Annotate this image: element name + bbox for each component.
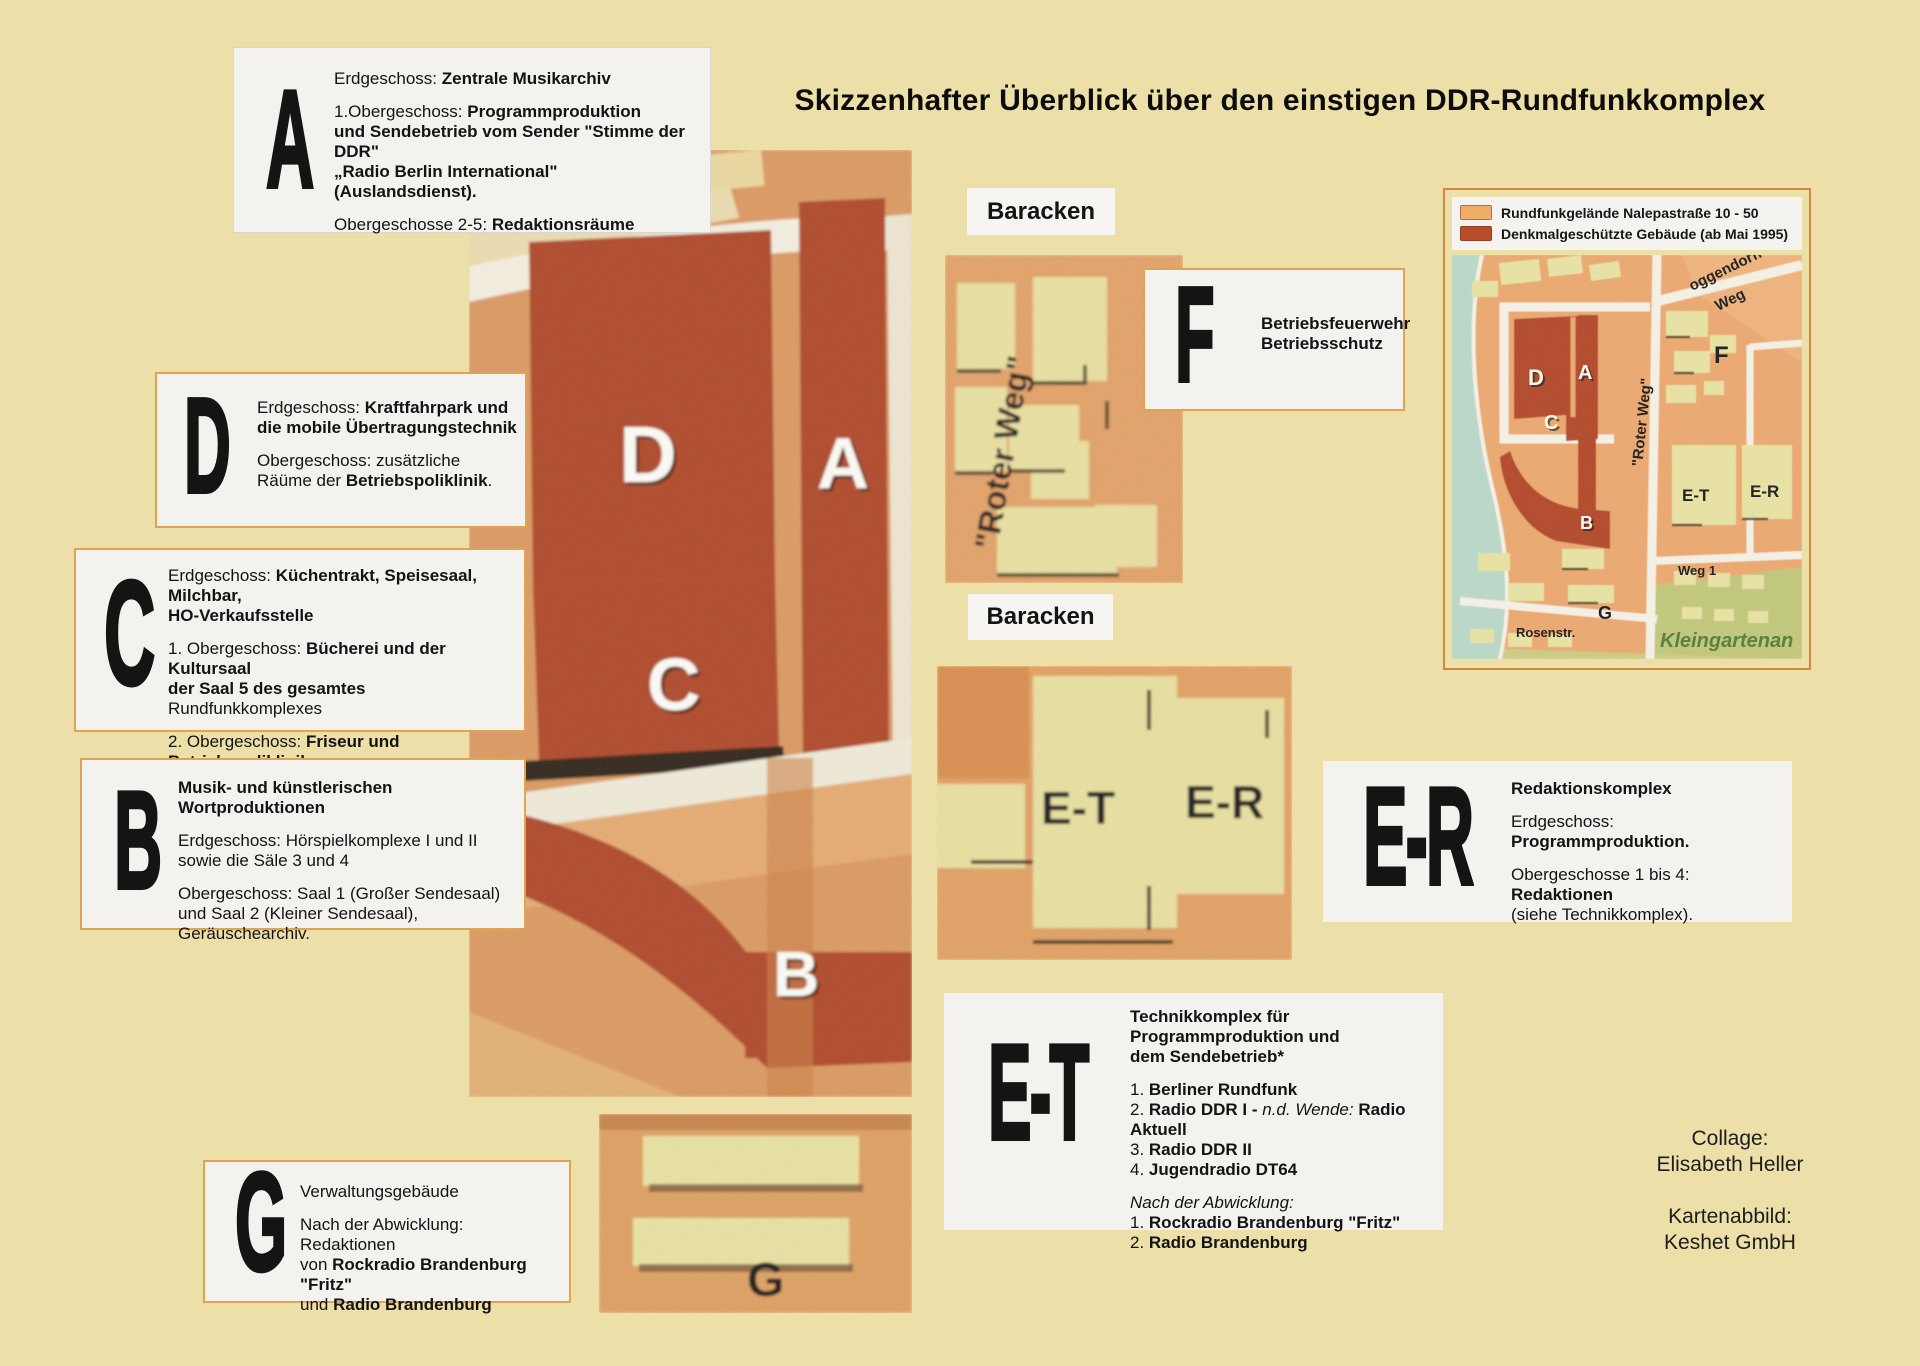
credit-map: Kartenabbild: Keshet GmbH bbox=[1655, 1204, 1805, 1256]
building-letter-b: B bbox=[114, 771, 162, 910]
legend-swatch-protected bbox=[1460, 226, 1492, 241]
legend-row-site: Rundfunkgelände Nalepastraße 10 - 50 bbox=[1460, 202, 1794, 223]
legend-box-c: C Erdgeschoss: Küchentrakt, Speisesaal, … bbox=[74, 548, 526, 732]
baracken-label-top: Baracken bbox=[967, 188, 1115, 235]
building-letter-er: E-R bbox=[1363, 767, 1472, 906]
box-b-text: Musik- und künstlerischen Wortproduktion… bbox=[178, 778, 518, 944]
page-title: Skizzenhafter Überblick über den einstig… bbox=[700, 84, 1860, 118]
box-c-text: Erdgeschoss: Küchentrakt, Speisesaal, Mi… bbox=[168, 566, 518, 772]
box-g-text: VerwaltungsgebäudeNach der Abwicklung: R… bbox=[300, 1182, 563, 1315]
legend-box-er: E-R RedaktionskomplexErdgeschoss: Progra… bbox=[1323, 761, 1792, 922]
legend-label-protected: Denkmalgeschützte Gebäude (ab Mai 1995) bbox=[1501, 226, 1788, 242]
box-d-text: Erdgeschoss: Kraftfahrpark unddie mobile… bbox=[257, 398, 519, 491]
legend-box-d: D Erdgeschoss: Kraftfahrpark unddie mobi… bbox=[155, 372, 527, 528]
legend-box-a: A Erdgeschoss: Zentrale Musikarchiv1.Obe… bbox=[233, 47, 711, 233]
legend-box-b: B Musik- und künstlerischen Wortprodukti… bbox=[80, 758, 526, 930]
legend-label-site: Rundfunkgelände Nalepastraße 10 - 50 bbox=[1501, 205, 1759, 221]
credit-collage-label: Collage: bbox=[1655, 1126, 1805, 1152]
box-a-text: Erdgeschoss: Zentrale Musikarchiv1.Oberg… bbox=[334, 69, 704, 235]
inset-map: D A C B F E-T E-R "Roter Weg" oggendorff… bbox=[1452, 255, 1802, 659]
box-et-text: Technikkomplex für Programmproduktion un… bbox=[1130, 1007, 1439, 1253]
credit-map-name: Keshet GmbH bbox=[1655, 1230, 1805, 1256]
legend-row-protected: Denkmalgeschützte Gebäude (ab Mai 1995) bbox=[1460, 223, 1794, 244]
legend-swatch-site bbox=[1460, 205, 1492, 220]
baracken-label-bottom: Baracken bbox=[968, 594, 1113, 640]
et-er-map-photo: E-T E-R bbox=[937, 666, 1292, 960]
box-er-text: RedaktionskomplexErdgeschoss: Programmpr… bbox=[1511, 779, 1788, 925]
building-letter-et: E-T bbox=[988, 1024, 1087, 1160]
collage-canvas: D A C B "Roter bbox=[0, 0, 1920, 1366]
inset-map-panel: Rundfunkgelände Nalepastraße 10 - 50 Den… bbox=[1443, 188, 1811, 670]
box-f-text: BetriebsfeuerwehrBetriebsschutz bbox=[1261, 314, 1399, 354]
legend-box-et: E-T Technikkomplex für Programmproduktio… bbox=[944, 993, 1443, 1230]
building-letter-d: D bbox=[184, 378, 231, 513]
credit-collage-name: Elisabeth Heller bbox=[1655, 1152, 1805, 1178]
building-letter-c: C bbox=[104, 560, 155, 708]
building-letter-f: F bbox=[1175, 267, 1215, 402]
g-map-photo: G bbox=[599, 1114, 912, 1313]
credits: Collage: Elisabeth Heller Kartenabbild: … bbox=[1655, 1126, 1805, 1282]
inset-legend: Rundfunkgelände Nalepastraße 10 - 50 Den… bbox=[1452, 197, 1802, 250]
credit-map-label: Kartenabbild: bbox=[1655, 1204, 1805, 1230]
credit-collage: Collage: Elisabeth Heller bbox=[1655, 1126, 1805, 1178]
central-map-photo: D A C B bbox=[469, 150, 912, 1097]
legend-box-f: F BetriebsfeuerwehrBetriebsschutz bbox=[1143, 268, 1405, 411]
building-letter-g: G bbox=[235, 1152, 287, 1292]
legend-box-g: G VerwaltungsgebäudeNach der Abwicklung:… bbox=[203, 1160, 571, 1303]
building-letter-a: A bbox=[266, 70, 314, 209]
